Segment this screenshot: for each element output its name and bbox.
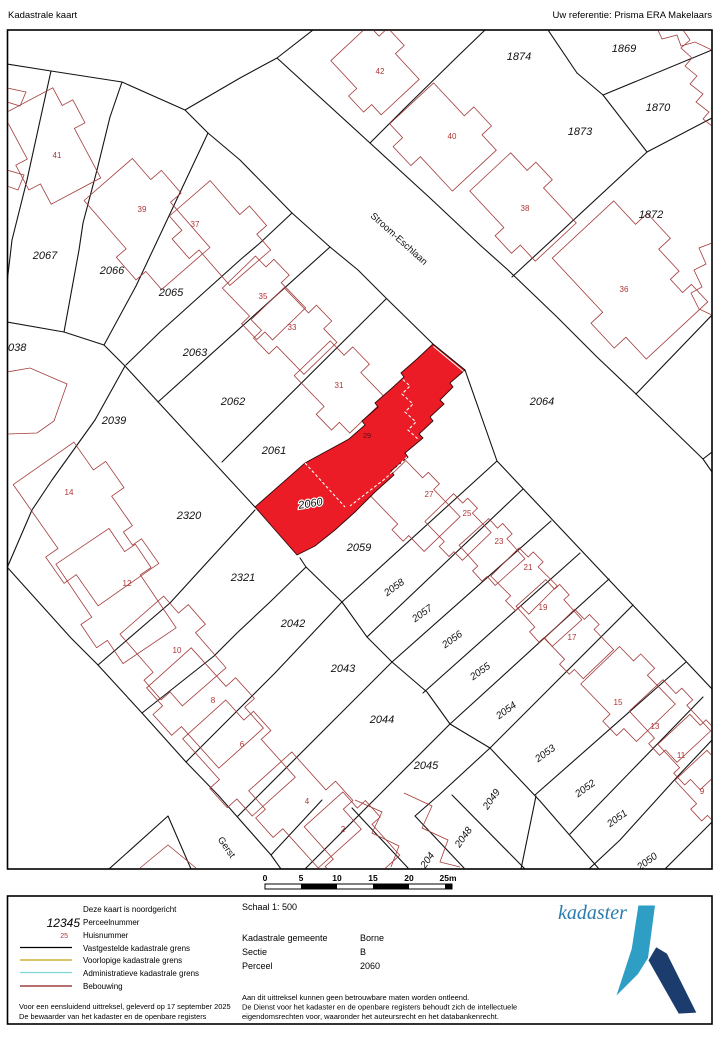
- svg-text:Borne: Borne: [360, 933, 384, 943]
- svg-text:15: 15: [368, 873, 378, 883]
- svg-text:2044: 2044: [369, 714, 394, 726]
- svg-text:2059: 2059: [346, 542, 371, 554]
- svg-text:038: 038: [8, 342, 27, 354]
- svg-text:Administratieve kadastrale gre: Administratieve kadastrale grens: [83, 969, 199, 978]
- svg-text:0: 0: [263, 873, 268, 883]
- svg-text:35: 35: [259, 292, 268, 301]
- svg-text:39: 39: [138, 205, 147, 214]
- svg-text:2067: 2067: [32, 250, 58, 262]
- svg-text:eigendomsrechten voor, waarond: eigendomsrechten voor, waaronder het aut…: [242, 1012, 499, 1021]
- svg-text:40: 40: [448, 132, 457, 141]
- svg-text:1874: 1874: [507, 51, 531, 63]
- svg-text:19: 19: [539, 603, 548, 612]
- svg-text:Voorlopige kadastrale grens: Voorlopige kadastrale grens: [83, 956, 182, 965]
- svg-text:2066: 2066: [99, 265, 125, 277]
- svg-text:33: 33: [288, 323, 297, 332]
- svg-text:2064: 2064: [529, 396, 554, 408]
- svg-text:21: 21: [524, 563, 533, 572]
- svg-text:14: 14: [65, 488, 74, 497]
- svg-text:5: 5: [299, 873, 304, 883]
- svg-text:Voor een eensluidend uittrekse: Voor een eensluidend uittreksel, gelever…: [19, 1002, 231, 1011]
- svg-text:De bewaarder van het kadaster: De bewaarder van het kadaster en de open…: [19, 1012, 207, 1021]
- svg-text:2063: 2063: [182, 347, 208, 359]
- svg-text:12345: 12345: [47, 916, 81, 930]
- svg-text:17: 17: [568, 633, 577, 642]
- svg-text:42: 42: [376, 67, 385, 76]
- svg-text:11: 11: [677, 751, 686, 760]
- svg-text:Huisnummer: Huisnummer: [83, 931, 129, 940]
- svg-text:Uw referentie: Prisma ERA Make: Uw referentie: Prisma ERA Makelaars: [553, 10, 713, 21]
- svg-text:kadaster: kadaster: [558, 902, 627, 924]
- svg-text:2321: 2321: [230, 572, 255, 584]
- svg-text:10: 10: [332, 873, 342, 883]
- svg-text:Deze kaart is noordgericht: Deze kaart is noordgericht: [83, 905, 177, 914]
- svg-text:2043: 2043: [330, 663, 356, 675]
- svg-text:Perceelnummer: Perceelnummer: [83, 918, 140, 927]
- svg-text:37: 37: [191, 220, 200, 229]
- svg-text:2039: 2039: [101, 415, 126, 427]
- svg-text:2065: 2065: [158, 287, 184, 299]
- svg-text:2061: 2061: [261, 445, 286, 457]
- svg-text:2045: 2045: [413, 760, 439, 772]
- svg-text:Sectie: Sectie: [242, 947, 267, 957]
- svg-text:29: 29: [363, 431, 371, 440]
- svg-text:10: 10: [173, 646, 182, 655]
- svg-text:B: B: [360, 947, 366, 957]
- svg-text:2042: 2042: [280, 618, 305, 630]
- svg-text:38: 38: [521, 204, 530, 213]
- svg-text:Schaal 1: 500: Schaal 1: 500: [242, 902, 297, 912]
- svg-text:Aan dit uittreksel kunnen geen: Aan dit uittreksel kunnen geen betrouwba…: [242, 993, 469, 1002]
- svg-text:9: 9: [700, 787, 705, 796]
- svg-text:25m: 25m: [439, 873, 456, 883]
- svg-text:2062: 2062: [220, 396, 245, 408]
- svg-text:2: 2: [341, 825, 346, 834]
- svg-text:36: 36: [620, 285, 629, 294]
- svg-text:25: 25: [463, 509, 472, 518]
- svg-text:12: 12: [123, 579, 132, 588]
- svg-text:2320: 2320: [176, 510, 202, 522]
- svg-text:1873: 1873: [568, 126, 593, 138]
- svg-text:25: 25: [60, 933, 68, 940]
- svg-text:2060: 2060: [360, 961, 380, 971]
- svg-text:1872: 1872: [639, 209, 663, 221]
- svg-text:Perceel: Perceel: [242, 961, 273, 971]
- svg-text:4: 4: [305, 797, 310, 806]
- svg-text:Vastgestelde kadastrale grens: Vastgestelde kadastrale grens: [83, 944, 190, 953]
- svg-text:Kadastrale kaart: Kadastrale kaart: [8, 10, 78, 21]
- svg-text:6: 6: [240, 740, 245, 749]
- svg-text:15: 15: [614, 698, 623, 707]
- svg-text:27: 27: [425, 490, 434, 499]
- svg-text:1870: 1870: [646, 102, 671, 114]
- svg-text:Kadastrale gemeente: Kadastrale gemeente: [242, 933, 328, 943]
- svg-text:Bebouwing: Bebouwing: [83, 982, 123, 991]
- svg-text:23: 23: [495, 537, 504, 546]
- svg-text:13: 13: [651, 722, 660, 731]
- svg-text:31: 31: [335, 381, 344, 390]
- svg-text:1869: 1869: [612, 43, 636, 55]
- svg-text:41: 41: [53, 151, 62, 160]
- svg-text:8: 8: [211, 696, 216, 705]
- svg-text:20: 20: [404, 873, 414, 883]
- svg-text:De Dienst voor het kadaster en: De Dienst voor het kadaster en de openba…: [242, 1003, 517, 1012]
